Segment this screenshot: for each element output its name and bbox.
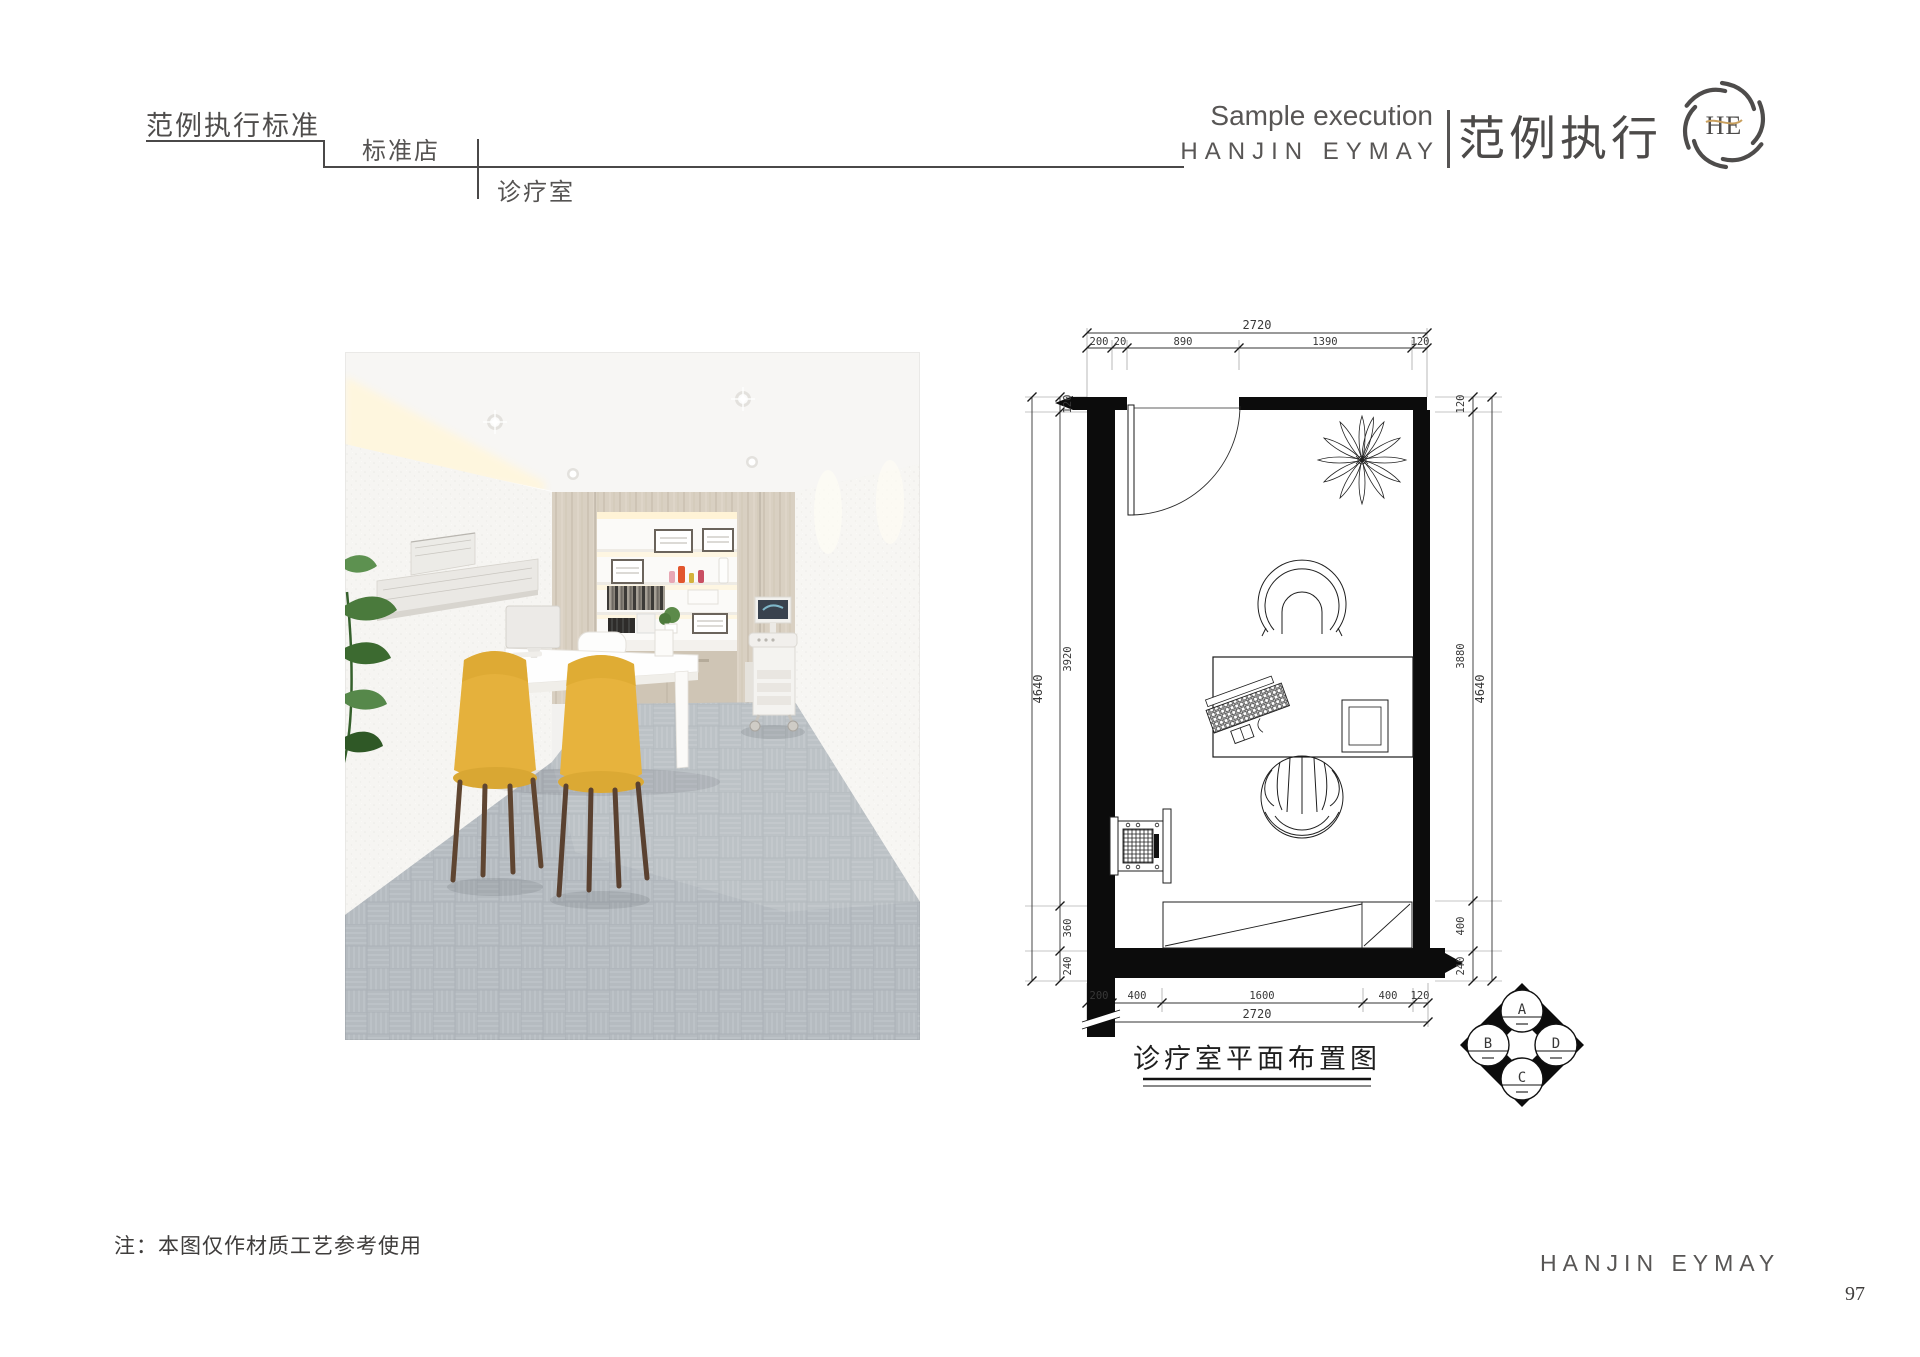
dim-label: 200	[1090, 336, 1109, 348]
header-brand-en: HANJIN EYMAY	[1140, 138, 1440, 166]
title-underline	[146, 140, 325, 142]
dim-label: 400	[1128, 990, 1147, 1002]
downlight-icon	[567, 468, 579, 480]
brand-logo-icon: HE	[1674, 72, 1774, 178]
dim-label: 3920	[1062, 646, 1074, 671]
breadcrumb-divider	[477, 139, 479, 199]
floor-plan-drawing: 2720 200 20 890 1390 120 4640 120 3920 3…	[1010, 320, 1610, 1120]
dim-label: 240	[1062, 957, 1074, 976]
dim-label: 2720	[1243, 1007, 1272, 1021]
footer-brand: HANJIN EYMAY	[1540, 1250, 1780, 1277]
chair-shadow	[550, 891, 650, 909]
marker-label: C	[1518, 1070, 1526, 1086]
door-symbol	[1128, 405, 1240, 515]
dim-label: 1390	[1312, 336, 1337, 348]
dim-label: 120	[1411, 336, 1430, 348]
room-render-photo	[345, 352, 920, 1040]
book-row	[607, 586, 665, 610]
document-page: 范例执行标准 标准店 诊疗室 Sample execution HANJIN E…	[0, 0, 1920, 1357]
chair-shadow	[447, 878, 543, 896]
dim-label: 4640	[1473, 675, 1487, 704]
plan-plant	[1318, 416, 1406, 504]
marker-label: A	[1518, 1002, 1527, 1018]
plan-caption: 诊疗室平面布置图	[1133, 1044, 1381, 1074]
marker-label: B	[1484, 1036, 1492, 1052]
header-horizontal-rule	[323, 166, 1184, 168]
page-title: 范例执行标准	[146, 104, 320, 143]
downlight-icon	[746, 456, 758, 468]
marker-label: D	[1552, 1036, 1560, 1052]
dim-label: 200	[1090, 990, 1109, 1002]
header-subtitle-en: Sample execution	[1140, 100, 1433, 132]
plan-cabinet	[1163, 902, 1412, 948]
dim-label: 20	[1114, 336, 1127, 348]
plan-task-chair	[1261, 756, 1343, 838]
dim-label: 4640	[1031, 675, 1045, 704]
brochure-holder	[655, 630, 673, 656]
dim-label: 3880	[1455, 643, 1467, 668]
dim-label: 1600	[1249, 990, 1274, 1002]
page-number: 97	[1845, 1283, 1865, 1306]
niche-top-light	[597, 512, 737, 519]
reference-note: 注：本图仅作材质工艺参考使用	[114, 1230, 422, 1260]
white-box	[688, 590, 718, 604]
plan-wall-unit	[1110, 809, 1171, 883]
dim-label: 400	[1379, 990, 1398, 1002]
dim-label: 890	[1174, 336, 1193, 348]
brand-separator-bar	[1447, 110, 1450, 168]
dim-label: 120	[1411, 990, 1430, 1002]
breadcrumb-room: 诊疗室	[497, 172, 575, 207]
elevation-marker: A B D C	[1460, 983, 1584, 1107]
desk-printer	[637, 614, 655, 633]
header-slogan-cn: 范例执行	[1458, 100, 1662, 169]
step-line-vertical	[323, 140, 325, 168]
logo-monogram: HE	[1706, 111, 1743, 140]
dim-label: 2720	[1243, 320, 1272, 332]
dim-label: 400	[1455, 917, 1467, 936]
dim-label: 120	[1062, 395, 1074, 414]
dim-label: 120	[1455, 395, 1467, 414]
wall-wash-glow	[876, 460, 904, 544]
plan-desk-tray	[1342, 700, 1388, 752]
breadcrumb-store: 标准店	[362, 131, 440, 166]
dim-label: 240	[1455, 957, 1467, 976]
dim-label: 360	[1062, 919, 1074, 938]
wall-wash-glow	[814, 470, 842, 554]
plan-visitor-chair	[1258, 560, 1346, 636]
